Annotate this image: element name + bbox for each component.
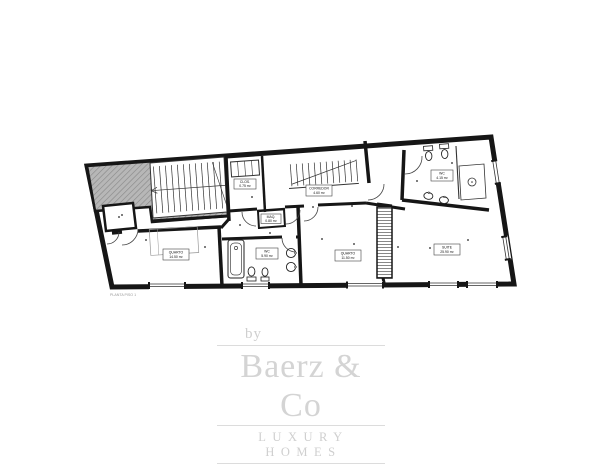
toilet-icon xyxy=(440,144,450,159)
window xyxy=(346,281,384,289)
room-area: 11.50 m² xyxy=(341,256,355,260)
room-label: MAQ. 0.80 m² xyxy=(261,214,281,224)
window xyxy=(148,282,186,290)
page: QUARTO 14.50 m² WC 5.90 m² MAQ. 0.80 m² … xyxy=(0,0,600,450)
window xyxy=(241,282,270,290)
room-label: WC 5.90 m² xyxy=(256,248,278,259)
room-label: CLOS. 0.75 m² xyxy=(234,179,256,189)
room-area: 25.90 m² xyxy=(440,250,454,254)
room-label: SUITE 25.90 m² xyxy=(434,244,460,255)
room-area: 0.75 m² xyxy=(239,184,251,188)
brand-logo: by Baerz & Co LUXURY HOMES xyxy=(217,326,385,464)
room-label: CORREDOR 4.60 m² xyxy=(306,185,332,196)
window xyxy=(491,159,502,185)
room-area: 0.80 m² xyxy=(265,219,277,223)
logo-tagline: LUXURY HOMES xyxy=(217,430,385,460)
room-label: WC 4.15 m² xyxy=(431,170,453,181)
room-label: QUARTO 14.50 m² xyxy=(163,249,189,260)
shower-icon xyxy=(459,164,486,200)
bidet-icon xyxy=(261,268,269,281)
plan-caption: PLANTA PISO 1 xyxy=(110,293,136,297)
bathroom-partition xyxy=(456,146,459,199)
room-area: 5.90 m² xyxy=(261,254,273,258)
room-label: QUARTO 11.50 m² xyxy=(335,250,361,261)
window xyxy=(428,281,459,289)
logo-rule-top xyxy=(217,345,385,346)
room-area: 14.50 m² xyxy=(169,255,183,259)
window xyxy=(466,281,498,289)
logo-by: by xyxy=(217,326,385,343)
logo-rule-middle xyxy=(217,425,385,426)
room-area: 4.15 m² xyxy=(436,176,448,180)
logo-brand-text: Baerz & Co xyxy=(217,347,385,425)
room-area: 4.60 m² xyxy=(313,191,325,195)
upper-stair-treads xyxy=(287,159,359,188)
wardrobe xyxy=(377,207,392,278)
bathtub-icon xyxy=(228,240,244,278)
toilet-icon xyxy=(247,267,256,281)
bidet-icon xyxy=(424,146,434,161)
closet-shelves xyxy=(231,160,260,177)
